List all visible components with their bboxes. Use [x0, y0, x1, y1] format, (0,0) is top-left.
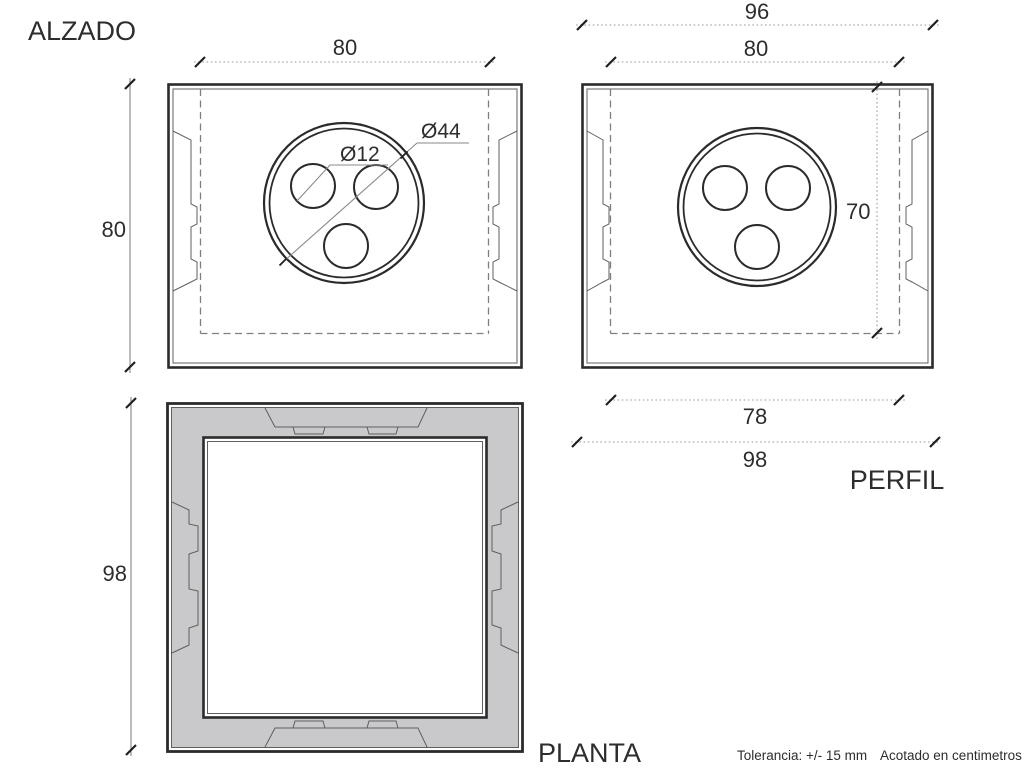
perfil-ring-inner: [684, 134, 831, 281]
planta-opening-fill: [203, 437, 487, 718]
view-alzado: ALZADO 80 80 Ø44 Ø12: [28, 16, 522, 373]
perfil-right-clip: [906, 131, 928, 291]
units-note: Acotado en centimetros: [880, 748, 1022, 763]
alzado-hole-bottom: [324, 224, 368, 268]
planta-dim-left-label: 98: [103, 561, 127, 586]
view-perfil: 96 80 70 78 98 PERFIL: [571, 0, 944, 495]
perfil-hole-right: [766, 166, 810, 210]
alzado-left-clip: [173, 131, 197, 291]
alzado-dia-holes-leader: [297, 165, 388, 201]
alzado-hole-right: [354, 165, 398, 209]
perfil-ring-outer: [678, 128, 836, 286]
alzado-hole-left: [291, 164, 335, 208]
alzado-dim-left-label: 80: [102, 217, 126, 242]
perfil-title: PERFIL: [850, 465, 945, 495]
alzado-dim-top-label: 80: [333, 35, 357, 60]
tolerance-note: Tolerancia: +/- 15 mm: [737, 748, 867, 763]
alzado-body-inner-edge: [173, 89, 517, 363]
perfil-left-clip: [587, 131, 609, 291]
technical-drawing: ALZADO 80 80 Ø44 Ø12: [0, 0, 1024, 768]
planta-title: PLANTA: [538, 738, 641, 768]
perfil-hole-bottom: [735, 225, 779, 269]
alzado-dia-outer-label: Ø44: [421, 120, 461, 143]
view-planta: 98 PLANTA: [103, 397, 642, 768]
perfil-dim-top-outer-label: 96: [745, 0, 769, 24]
perfil-dim-bottom-outer-label: 98: [743, 447, 767, 472]
footer-notes: Tolerancia: +/- 15 mm Acotado en centime…: [737, 748, 1022, 763]
perfil-hole-left: [703, 166, 747, 210]
perfil-dim-bottom-inner-label: 78: [743, 404, 767, 429]
perfil-dim-right-label: 70: [846, 199, 870, 224]
alzado-body-outline: [169, 85, 522, 368]
alzado-title: ALZADO: [28, 16, 136, 46]
alzado-right-clip: [493, 131, 517, 291]
alzado-dim-ticks: [125, 57, 495, 372]
drawing-canvas: ALZADO 80 80 Ø44 Ø12: [0, 0, 1024, 768]
perfil-dim-top-inner-label: 80: [744, 36, 768, 61]
alzado-dia-holes-label: Ø12: [340, 143, 380, 166]
